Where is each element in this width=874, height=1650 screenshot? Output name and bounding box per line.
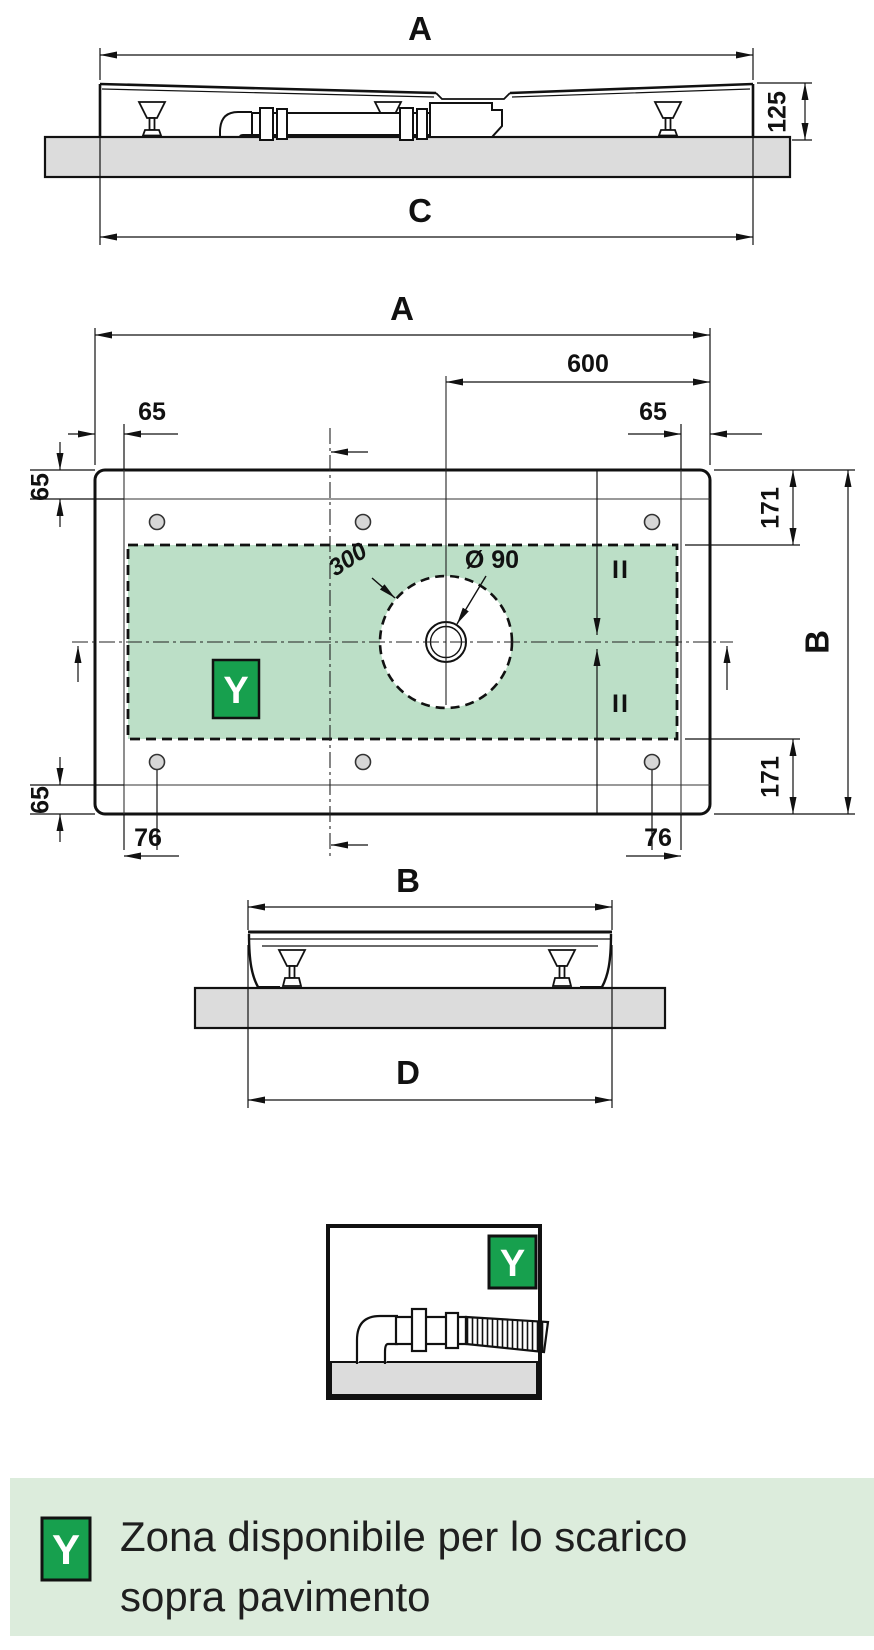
zone-y-letter: Y [223,670,248,712]
dim-label-76-left: 76 [134,824,162,852]
equal-mark-bottom: II [612,690,630,718]
dim-label-65-left-bottom: 65 [27,786,55,814]
plan-view: II II A 600 65 65 65 [27,290,855,860]
end-elevation-view: B D [195,862,665,1108]
floor-slab [45,137,790,177]
detail-floor-strip [331,1362,537,1395]
dim-label-b-end: B [396,862,420,899]
dimension-65-top-right [628,424,762,470]
side-elevation-view: A 125 C [45,10,812,245]
dim-label-diameter-90: Ø 90 [465,546,519,574]
legend-text-line2: sopra pavimento [120,1573,431,1620]
dim-label-65-top-right: 65 [639,398,667,426]
legend-y-badge: Y [42,1518,90,1580]
dim-label-a-side: A [408,10,432,47]
drain-pipework [220,103,502,140]
tray-feet-end-view [279,950,575,986]
dim-label-171-bottom: 171 [757,756,785,798]
dim-label-c: C [408,192,432,229]
legend: Y Zona disponibile per lo scarico sopra … [10,1478,874,1636]
dimension-a-side [100,48,753,80]
dimension-a-plan [95,328,710,465]
dim-label-171-top: 171 [757,487,785,529]
dimension-b-end [248,900,612,930]
shower-tray-technical-drawing: A 125 C [0,0,874,1650]
legend-text-line1: Zona disponibile per lo scarico [120,1513,687,1560]
dim-label-600: 600 [567,350,609,378]
dim-label-65-top-left: 65 [138,398,166,426]
dim-label-125: 125 [764,91,792,133]
drain-trap [430,103,502,137]
dim-label-a-plan: A [390,290,414,327]
legend-y-letter: Y [52,1526,80,1573]
dim-label-76-right: 76 [644,824,672,852]
dimension-65-top-left [68,424,178,470]
zone-y-badge: Y [213,660,259,718]
dim-label-b-plan: B [799,630,836,654]
detail-box-view: Y [328,1226,548,1398]
detail-y-badge: Y [489,1236,536,1288]
dim-label-d: D [396,1054,420,1091]
detail-y-letter: Y [500,1243,525,1285]
floor-slab-end-view [195,988,665,1028]
technical-drawing-page: A 125 C [0,0,874,1650]
equal-mark-top: II [612,556,630,584]
dim-label-65-left-top: 65 [27,473,55,501]
